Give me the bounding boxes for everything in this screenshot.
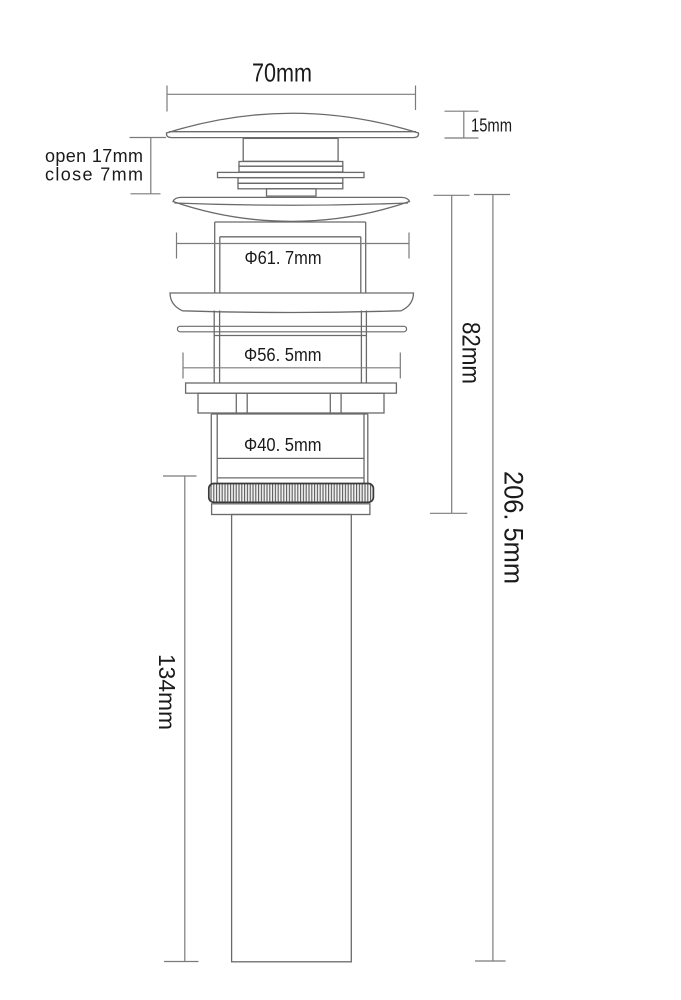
svg-text:Φ40. 5mm: Φ40. 5mm <box>244 435 322 455</box>
svg-text:15mm: 15mm <box>471 115 512 135</box>
svg-text:82mm: 82mm <box>457 322 485 384</box>
svg-text:206. 5mm: 206. 5mm <box>499 471 529 584</box>
svg-text:134mm: 134mm <box>154 654 180 730</box>
svg-text:Φ56. 5mm: Φ56. 5mm <box>244 345 322 365</box>
svg-text:close 7mm: close 7mm <box>45 164 143 184</box>
svg-text:Φ61. 7mm: Φ61. 7mm <box>245 248 322 268</box>
svg-text:open 17mm: open 17mm <box>45 146 143 166</box>
svg-text:70mm: 70mm <box>252 58 312 88</box>
